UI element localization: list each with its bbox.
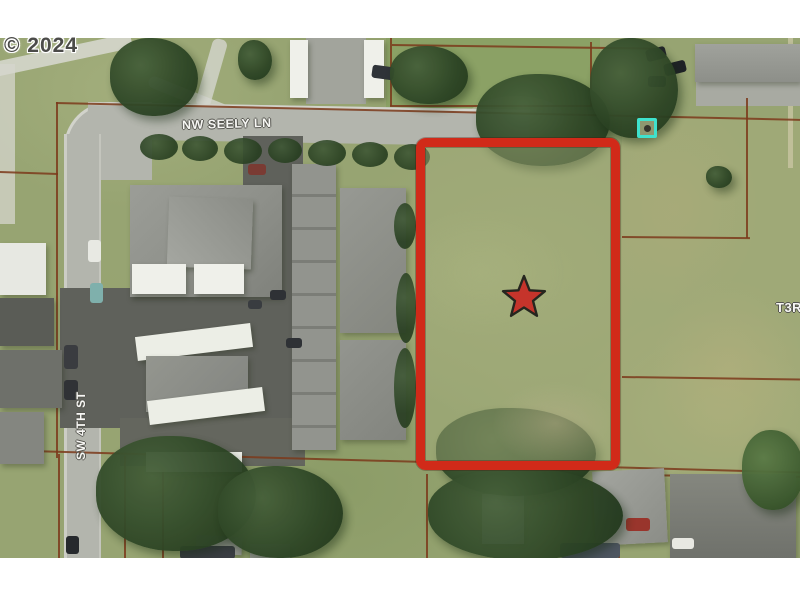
parking-stall-roof bbox=[290, 40, 308, 98]
building-roof bbox=[0, 350, 62, 408]
townhouse-row-roof bbox=[292, 164, 336, 450]
lot-line bbox=[746, 98, 748, 238]
tree bbox=[390, 46, 468, 104]
street-label-nw-seely-ln: NW SEELY LN bbox=[182, 116, 272, 132]
building-roof bbox=[167, 197, 253, 270]
tree bbox=[706, 166, 732, 188]
listing-photo: NW SEELY LN SW 4TH ST T3R © 2024 bbox=[0, 0, 800, 600]
car bbox=[672, 538, 694, 549]
house-roof bbox=[695, 44, 800, 82]
car bbox=[626, 518, 650, 531]
car bbox=[270, 290, 286, 300]
shrub bbox=[396, 273, 416, 343]
tree bbox=[110, 38, 198, 116]
driveway-top bbox=[306, 38, 366, 104]
shrub bbox=[308, 140, 346, 166]
shrub bbox=[394, 348, 416, 428]
carport-roof bbox=[194, 264, 244, 294]
car bbox=[248, 300, 262, 309]
car bbox=[66, 536, 79, 554]
building-roof bbox=[0, 298, 54, 346]
street-label-sw-4th-st: SW 4TH ST bbox=[74, 374, 88, 460]
tree bbox=[238, 40, 272, 80]
aerial-map: NW SEELY LN SW 4TH ST T3R bbox=[0, 38, 800, 558]
poi-dot-icon bbox=[644, 125, 651, 132]
shrub bbox=[352, 142, 388, 167]
shrub bbox=[224, 138, 262, 164]
car bbox=[88, 240, 101, 262]
poi-marker-icon bbox=[637, 118, 657, 138]
building-roof bbox=[0, 243, 46, 295]
star-icon bbox=[494, 267, 554, 327]
tree bbox=[742, 430, 800, 510]
car bbox=[64, 345, 78, 369]
building-roof bbox=[0, 412, 44, 464]
shrub bbox=[182, 136, 218, 161]
township-label: T3R bbox=[776, 300, 800, 315]
tree bbox=[428, 468, 623, 558]
shrub bbox=[268, 138, 302, 163]
shrub bbox=[140, 134, 178, 160]
copyright-watermark: © 2024 bbox=[4, 34, 78, 58]
footpath bbox=[0, 64, 15, 224]
car bbox=[286, 338, 302, 348]
tree bbox=[218, 466, 343, 558]
car bbox=[90, 283, 103, 303]
car bbox=[248, 164, 266, 175]
shrub bbox=[394, 203, 416, 249]
carport-roof bbox=[132, 264, 186, 294]
tree bbox=[590, 38, 678, 138]
lot-line bbox=[58, 454, 60, 558]
